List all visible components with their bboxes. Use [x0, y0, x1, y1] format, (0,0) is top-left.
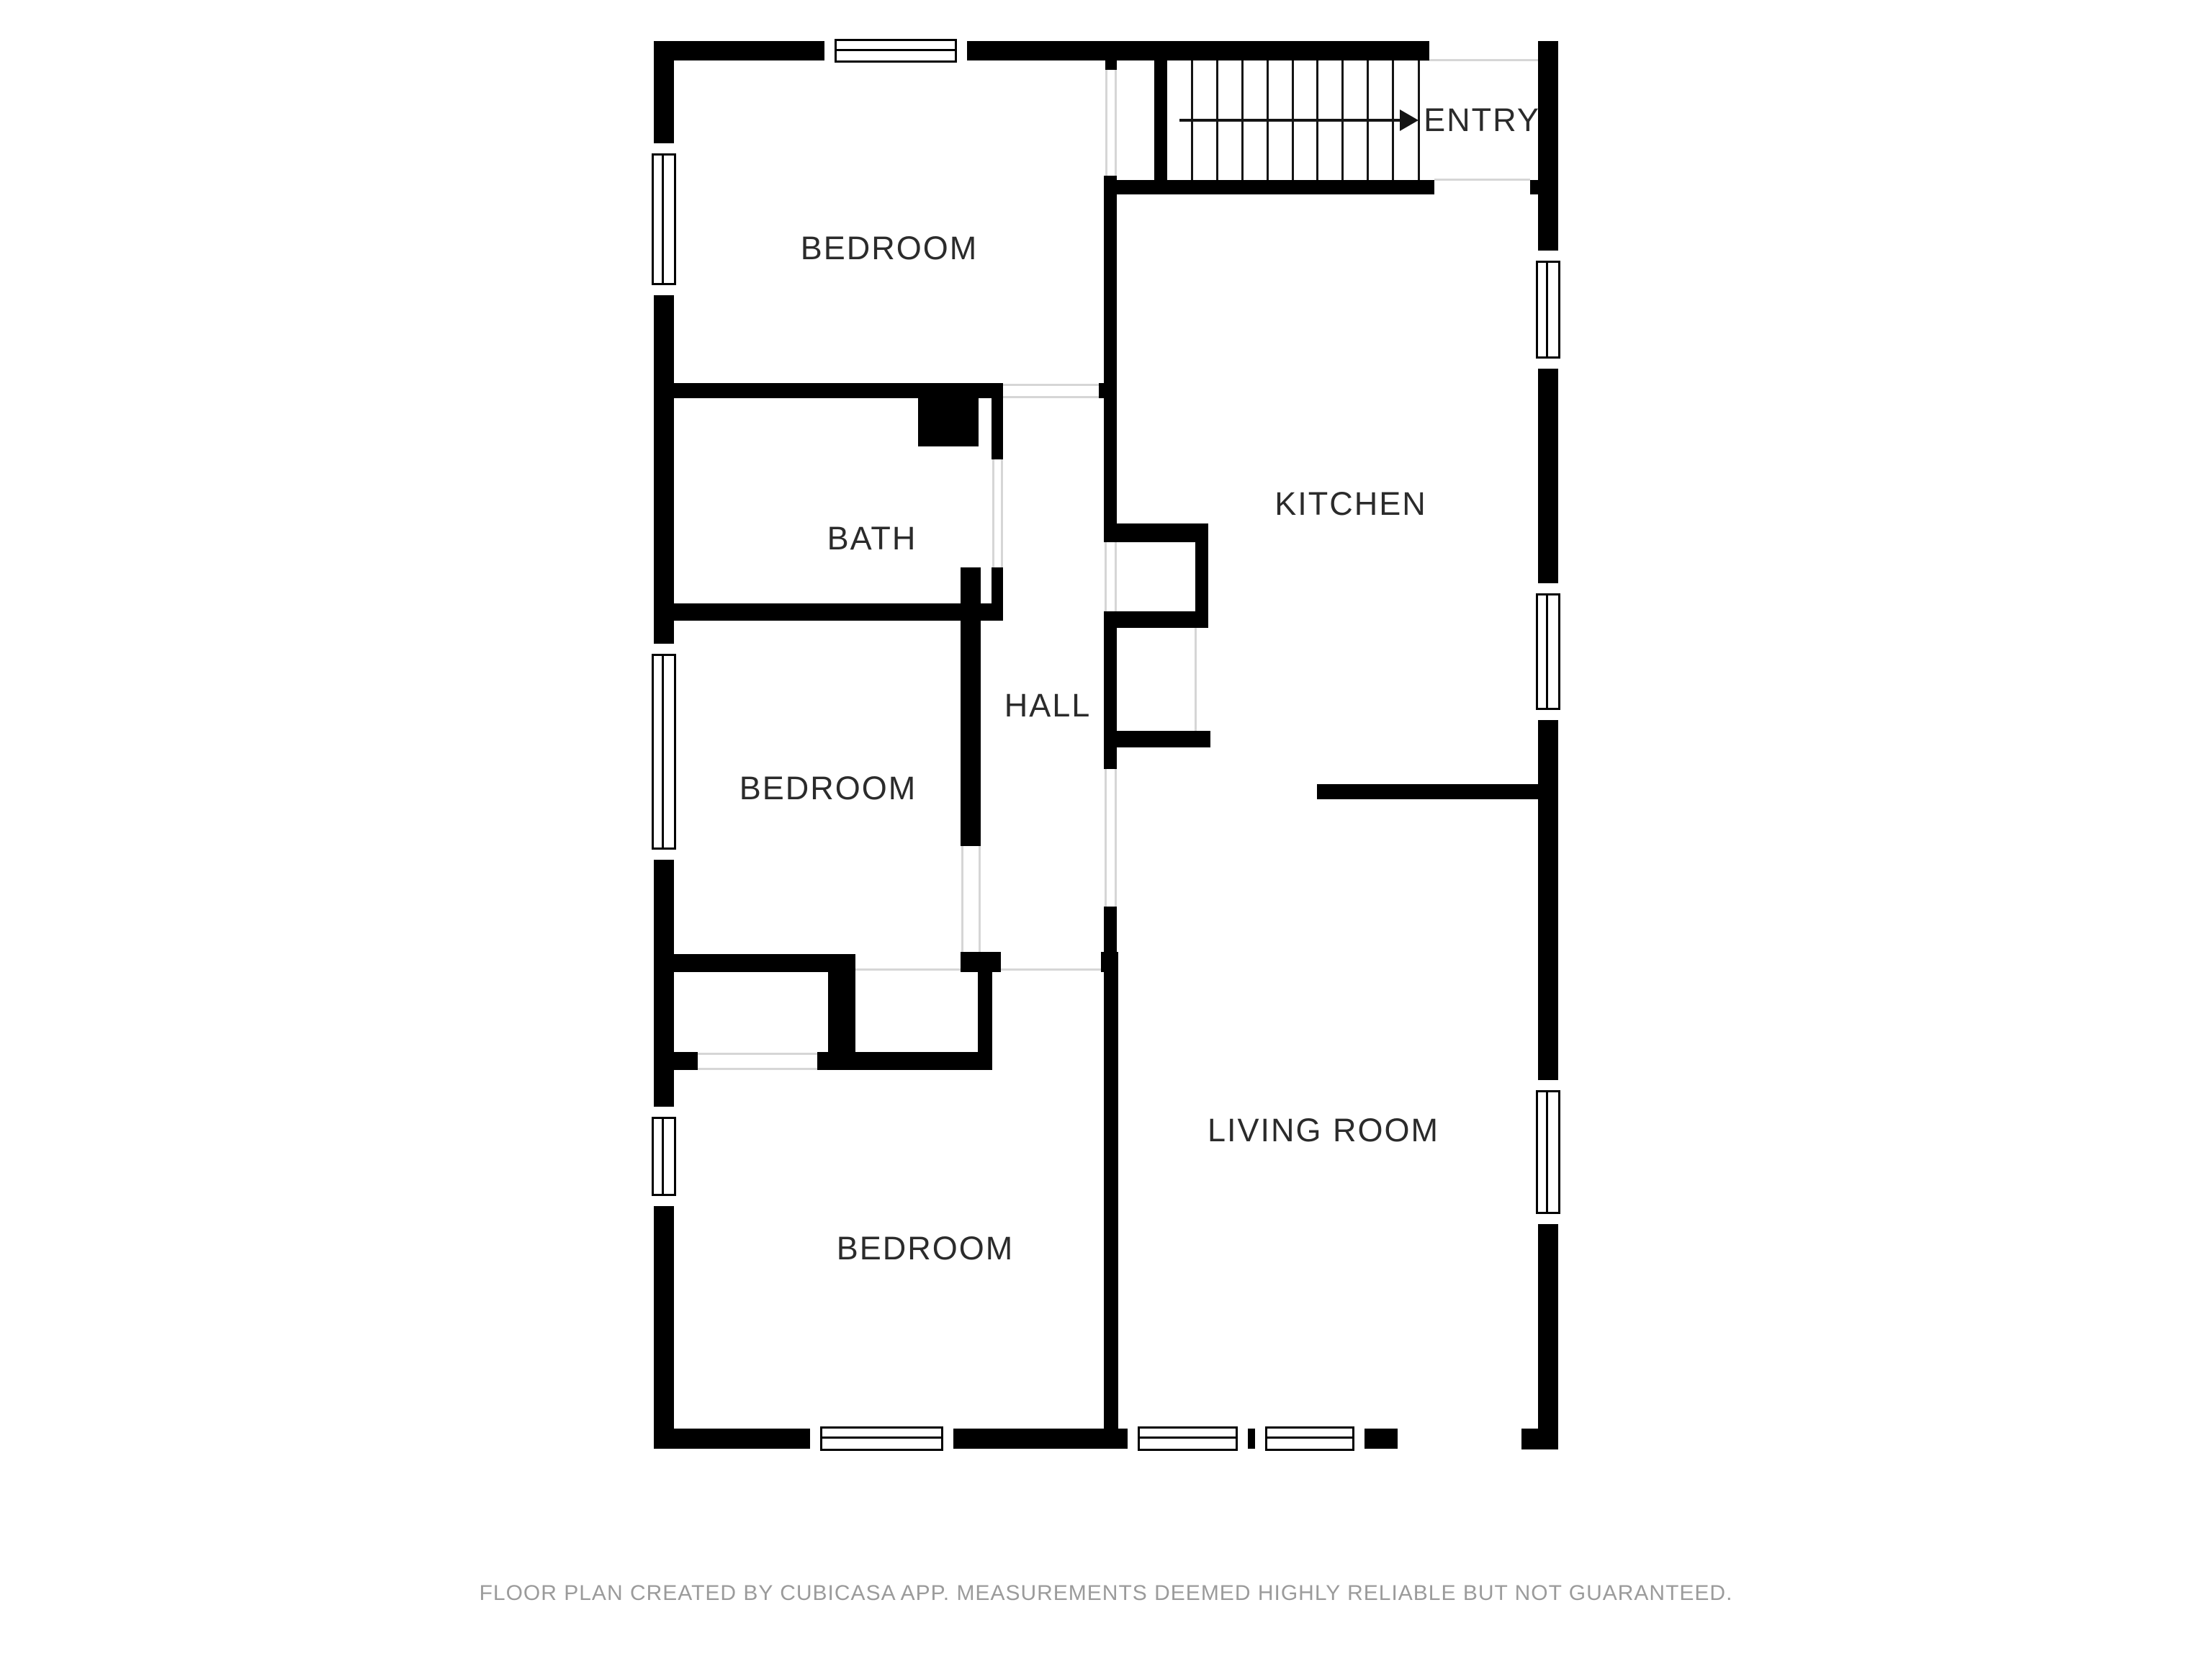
bottom-wall-seg2	[953, 1429, 1128, 1449]
window-left-bedroom3-midline	[662, 1118, 664, 1195]
window-right-kitchen-mid-pane	[1536, 593, 1560, 710]
living-west-wall	[1104, 972, 1118, 1429]
left-wall-seg2	[654, 295, 674, 644]
below-stairs-wall	[1105, 180, 1434, 194]
window-left-bedroom1-midline	[662, 155, 664, 284]
window-bottom-living-1-midline	[1139, 1437, 1236, 1439]
pantry1-opening-line-left	[1105, 542, 1107, 611]
bedroom1-closet-line-right	[1115, 70, 1117, 176]
bath-door-line-left	[992, 459, 994, 567]
bath-chimney-block	[918, 397, 979, 446]
right-wall-foot-block	[1521, 1429, 1558, 1449]
top-wall-seg1	[654, 41, 824, 60]
closet-b-right-wall	[978, 969, 992, 1052]
pantry1-opening-line-right	[1115, 542, 1117, 611]
pantry-right-wall	[1195, 542, 1208, 611]
right-wall-seg3	[1538, 720, 1558, 1080]
stair-left-wall	[1154, 60, 1167, 180]
window-right-kitchen-top-pane	[1536, 261, 1560, 359]
room-label-living-room: LIVING ROOM	[1208, 1112, 1439, 1149]
pantry-mid-wall	[1104, 611, 1208, 628]
right-wall-seg4	[1538, 1224, 1558, 1449]
bedroom1-door-line-top	[1003, 384, 1099, 386]
hall-kitchen-wall-seg3	[1104, 907, 1117, 952]
bath-right-wall-upper	[992, 398, 1003, 459]
room-label-bedroom-bottom: BEDROOM	[837, 1230, 1015, 1267]
window-left-bedroom2-midline	[662, 655, 664, 848]
left-wall-seg4	[654, 1206, 674, 1449]
window-bottom-living-1-pane	[1138, 1426, 1238, 1451]
bottom-wall-seg1	[654, 1429, 810, 1449]
bedroom1-door-line-bottom	[1003, 396, 1099, 398]
bedroom2-door-line-right	[979, 846, 981, 952]
window-right-living-pane	[1536, 1090, 1560, 1214]
top-wall-seg2	[967, 41, 1429, 60]
window-bottom-bedroom3-pane	[820, 1426, 943, 1451]
window-right-living	[1536, 1080, 1560, 1224]
bath-bottom-wall	[674, 603, 1003, 621]
window-top-bedroom1-midline	[836, 49, 956, 51]
window-bottom-bedroom3-midline	[822, 1437, 942, 1439]
room-label-kitchen: KITCHEN	[1274, 485, 1427, 523]
bedroom1-right-wall-stub	[1105, 60, 1117, 70]
room-label-entry: ENTRY	[1424, 102, 1540, 139]
window-right-kitchen-top-midline	[1546, 262, 1548, 357]
room-label-bedroom-top: BEDROOM	[801, 230, 979, 267]
pantry-bottom-wall	[1104, 731, 1210, 747]
hall-south-corner-block	[1101, 952, 1118, 972]
closet-bottom-wall	[817, 1052, 992, 1070]
bedroom1-closet-line-left	[1105, 70, 1107, 176]
window-bottom-living-1	[1128, 1426, 1248, 1451]
window-left-bedroom1-pane	[652, 153, 676, 285]
bedroom1-bottom-wall	[674, 383, 1003, 398]
entry-top-line	[1418, 59, 1538, 61]
bottom-wall-seg3	[1364, 1429, 1398, 1449]
window-bottom-bedroom3	[810, 1426, 953, 1451]
window-bottom-living-2-midline	[1267, 1437, 1353, 1439]
room-label-hall: HALL	[1004, 687, 1092, 724]
window-left-bedroom3	[652, 1107, 676, 1206]
hall-kitchen-wall-seg1	[1104, 176, 1117, 542]
right-wall-seg2	[1538, 369, 1558, 583]
left-wall-seg3	[654, 860, 674, 1107]
kitchen-living-divider	[1317, 784, 1538, 799]
bedroom2-door-line-left	[961, 846, 963, 952]
bedroom2-right-wall	[961, 567, 981, 846]
entry-bottom-line	[1434, 179, 1530, 181]
room-label-bath: BATH	[827, 520, 917, 557]
pantry-top-wall	[1104, 523, 1208, 542]
below-stairs-wall-stub	[1530, 180, 1538, 194]
stair-direction-arrow-head	[1400, 109, 1419, 131]
hall-living-line-right	[1115, 769, 1117, 907]
bath-door-line-right	[1001, 459, 1003, 567]
window-right-living-midline	[1546, 1092, 1548, 1213]
right-wall-seg1	[1538, 41, 1558, 251]
window-right-kitchen-mid-midline	[1546, 595, 1548, 709]
window-right-kitchen-mid	[1536, 583, 1560, 720]
window-left-bedroom1	[652, 143, 676, 295]
window-right-kitchen-top	[1536, 251, 1560, 369]
hall-living-line-left	[1105, 769, 1107, 907]
window-left-bedroom2	[652, 644, 676, 860]
closet-a-door-line-bottom	[698, 1068, 817, 1070]
window-bottom-living-2	[1255, 1426, 1364, 1451]
bath-right-wall-lower	[992, 567, 1003, 603]
room-label-bedroom-middle: BEDROOM	[739, 770, 917, 807]
footer-disclaimer: FLOOR PLAN CREATED BY CUBICASA APP. MEAS…	[0, 1581, 2212, 1606]
window-left-bedroom3-pane	[652, 1117, 676, 1196]
floor-plan-canvas: BEDROOMENTRYKITCHENBATHHALLBEDROOMLIVING…	[0, 0, 2212, 1659]
closet-bottom-wall-stub	[674, 1052, 698, 1070]
bottom-wall-mullion	[1248, 1429, 1255, 1449]
pantry2-right-line	[1195, 628, 1197, 731]
window-left-bedroom2-pane	[652, 654, 676, 850]
closet-a-door-line-top	[698, 1053, 817, 1055]
stair-direction-arrow-line	[1179, 119, 1403, 122]
window-top-bedroom1	[824, 39, 967, 63]
window-bottom-living-2-pane	[1265, 1426, 1354, 1451]
